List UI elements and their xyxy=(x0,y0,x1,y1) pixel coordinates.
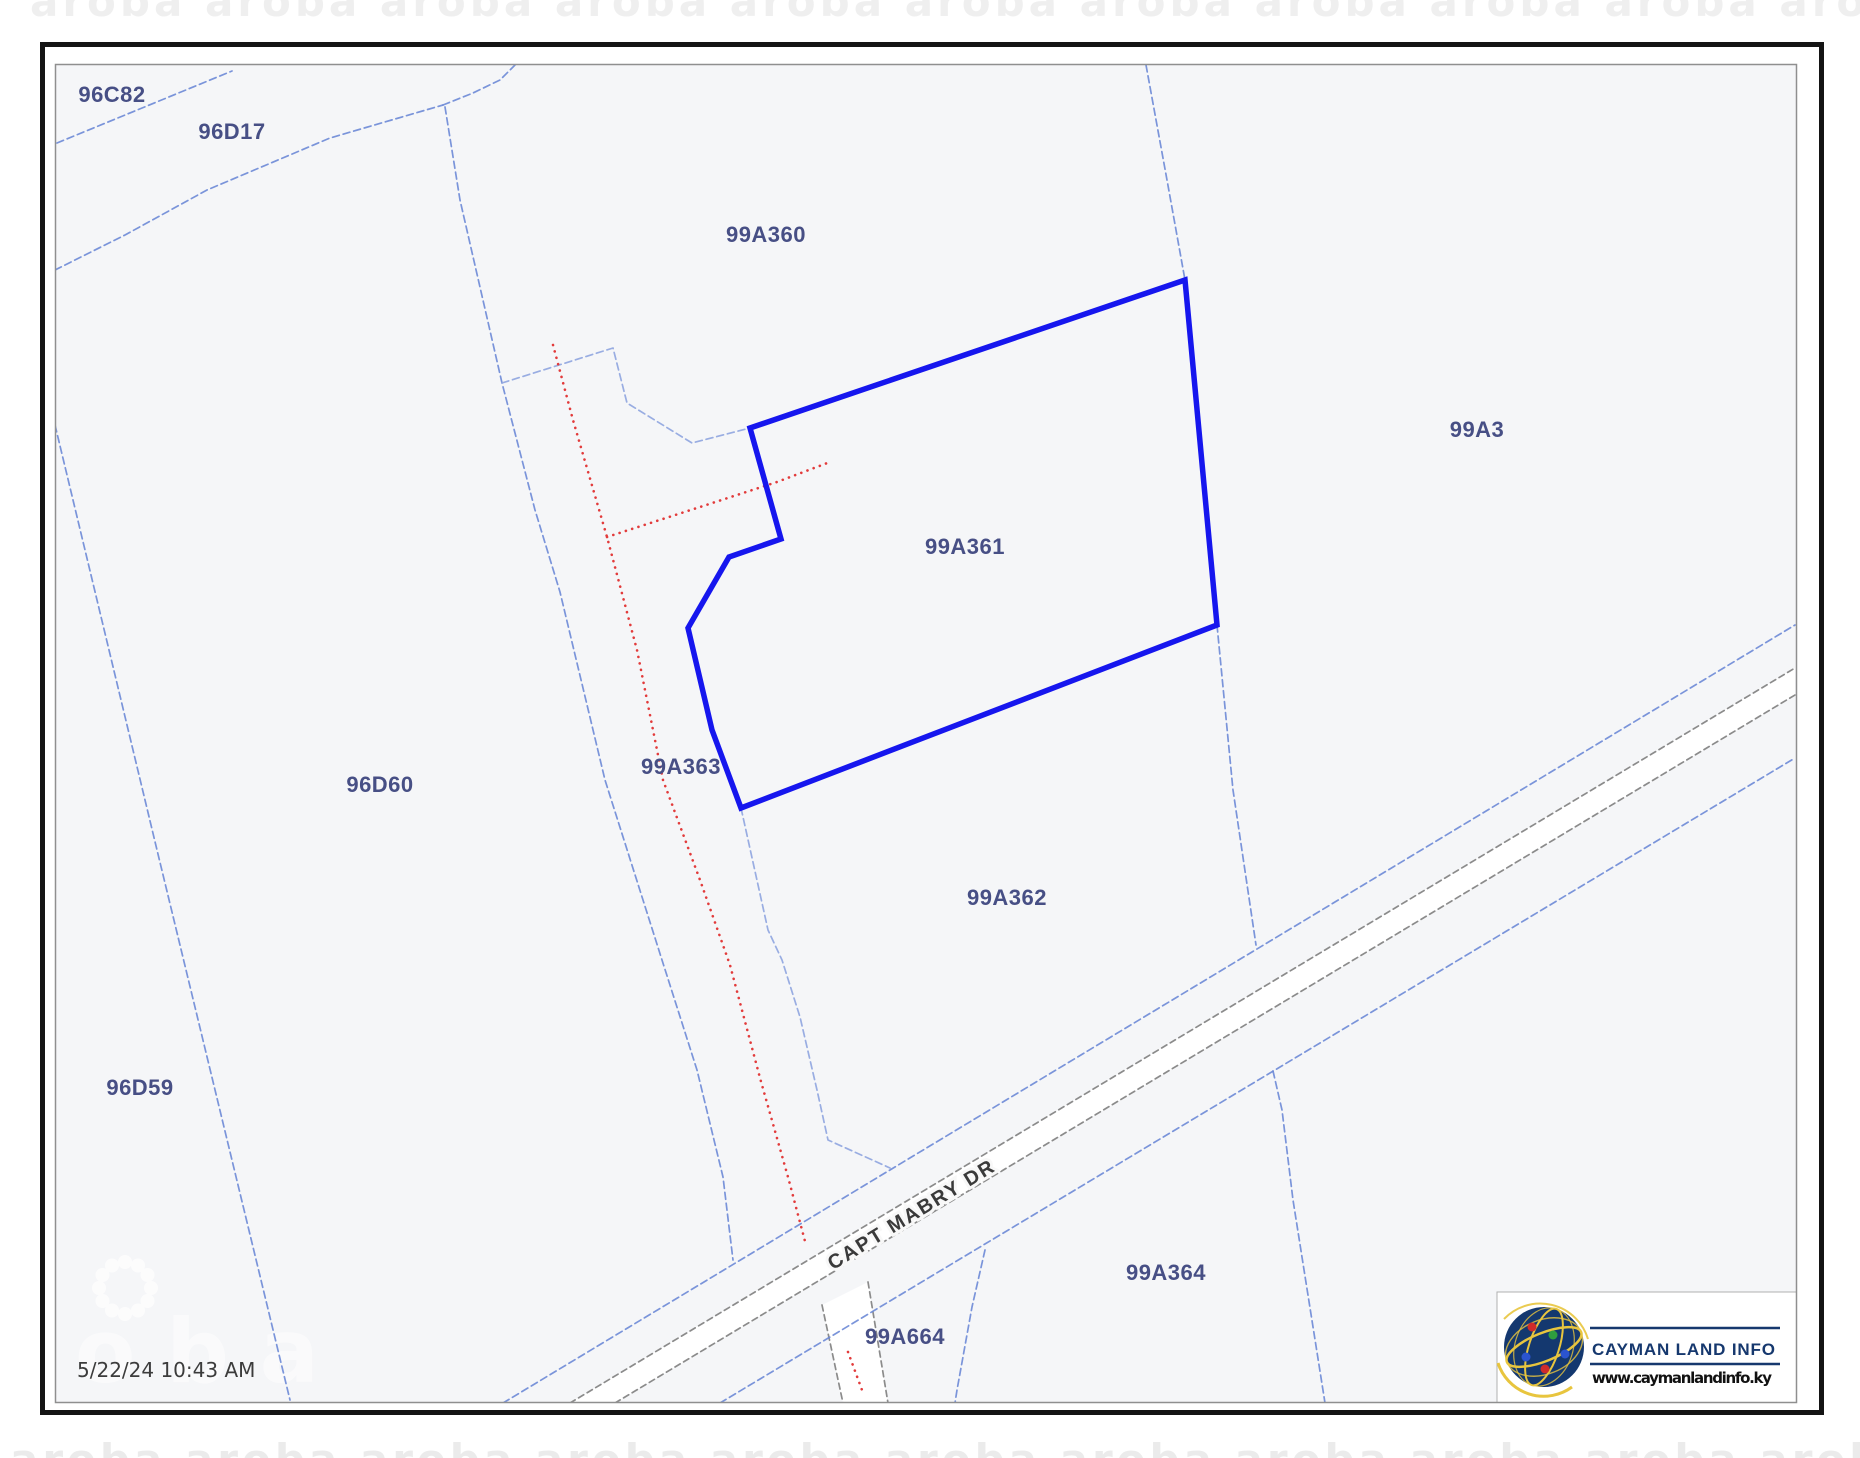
parcel-label-99A360[interactable]: 99A360 xyxy=(726,222,806,247)
parcel-label-96D60[interactable]: 96D60 xyxy=(346,772,413,797)
parcel-label-99A664[interactable]: 99A664 xyxy=(865,1324,945,1349)
parcel-label-99A3[interactable]: 99A3 xyxy=(1450,417,1505,442)
page: aroba aroba aroba aroba aroba aroba arob… xyxy=(0,0,1860,1458)
logo-title: CAYMAN LAND INFO xyxy=(1592,1340,1778,1359)
logo-website: www.caymanlandinfo.ky xyxy=(1592,1369,1772,1387)
parcel-label-96D17[interactable]: 96D17 xyxy=(198,119,265,144)
top-watermark-strip: aroba aroba aroba aroba aroba aroba arob… xyxy=(30,0,1860,26)
cadastral-map-canvas: aroba aroba aroba aroba aroba aroba arob… xyxy=(0,0,1860,1458)
parcel-label-99A362[interactable]: 99A362 xyxy=(967,885,1047,910)
bottom-watermark-strip: aroba aroba aroba aroba aroba aroba arob… xyxy=(10,1435,1860,1458)
parcel-label-96D59[interactable]: 96D59 xyxy=(106,1075,173,1100)
parcel-label-96C82[interactable]: 96C82 xyxy=(78,82,145,107)
parcel-label-99A363[interactable]: 99A363 xyxy=(641,754,721,779)
parcel-label-99A361[interactable]: 99A361 xyxy=(925,534,1005,559)
map-timestamp: 5/22/24 10:43 AM xyxy=(77,1358,255,1382)
logo-cayman-land-info: CAYMAN LAND INFO www.caymanlandinfo.ky xyxy=(1497,1292,1797,1403)
parcel-label-99A364[interactable]: 99A364 xyxy=(1126,1260,1206,1285)
